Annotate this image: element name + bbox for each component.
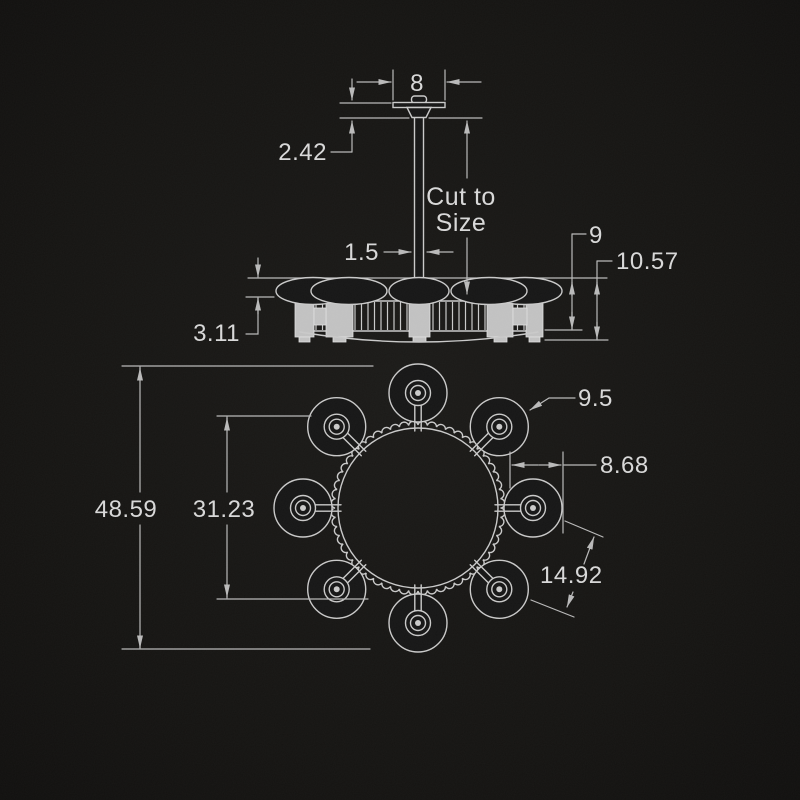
dim-label-shade-overhang: 8.68 (600, 452, 649, 479)
rod-note-line2: Size (436, 209, 487, 237)
screenshot-root: { "colors": { "background": "#151412", "… (0, 0, 800, 800)
dim-label-body-height: 9 (589, 222, 603, 249)
dim-label-overall-drop: 10.57 (616, 248, 679, 275)
dim-label-rod-width: 1.5 (344, 239, 379, 266)
lamp-shade-plan (470, 560, 528, 618)
lamp-shades-elevation (276, 278, 562, 305)
lamp-shade-plan (470, 398, 528, 456)
chandelier-technical-drawing: 8 2.42 Cut to Size (0, 0, 800, 800)
dim-label-shade-spacing: 14.92 (540, 562, 603, 589)
dim-label-canopy-width: 8 (410, 70, 424, 97)
hang-rod (415, 117, 424, 300)
dim-label-across-centers: 31.23 (193, 496, 256, 523)
lamp-shade-plan (308, 398, 366, 456)
dim-label-canopy-height: 2.42 (278, 139, 327, 166)
rod-note-line1: Cut to (426, 183, 496, 211)
dim-label-shade-height: 3.11 (193, 320, 240, 347)
lamp-shade-plan (308, 560, 366, 618)
dim-label-shade-diameter: 9.5 (578, 385, 613, 412)
dim-label-overall-diameter: 48.59 (95, 496, 158, 523)
